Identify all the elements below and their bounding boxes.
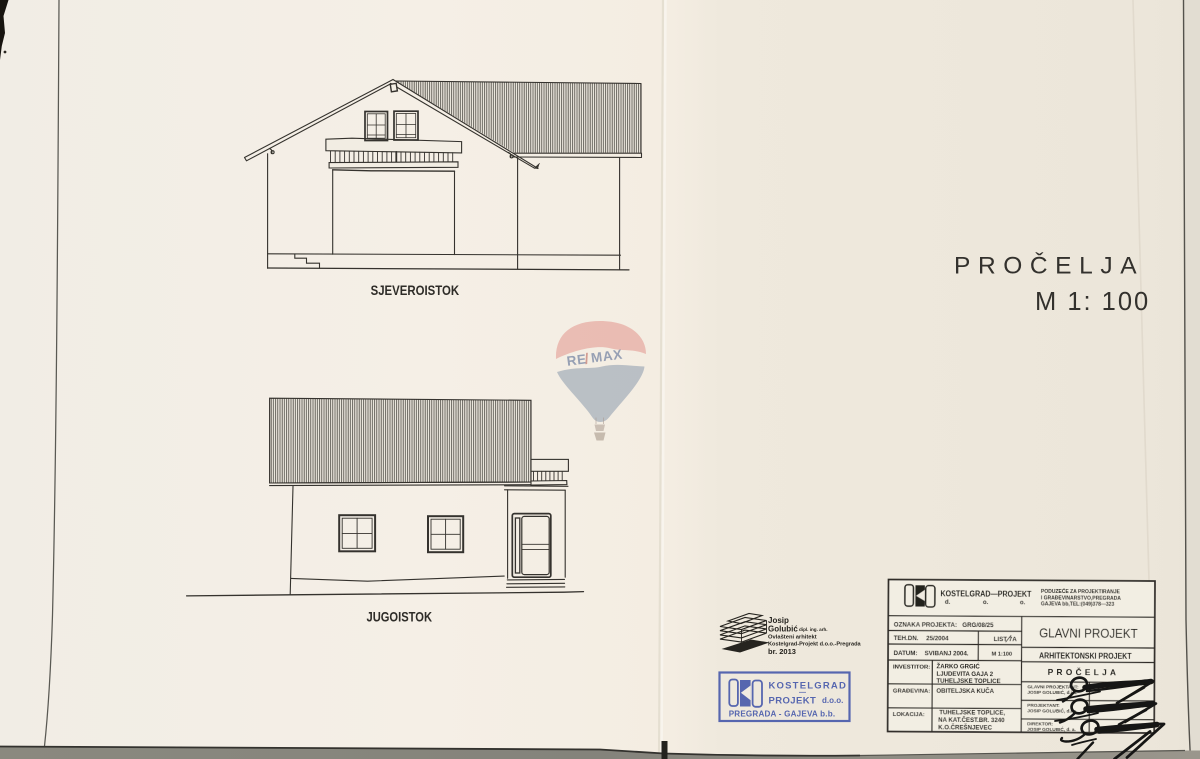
svg-text:PROJEKTANT:: PROJEKTANT: — [1027, 703, 1060, 708]
svg-text:d.: d. — [945, 599, 951, 606]
svg-text:KOSTELGRAD: KOSTELGRAD — [769, 681, 848, 692]
svg-text:GRG/08/25: GRG/08/25 — [962, 622, 994, 629]
svg-text:DATUM:: DATUM: — [894, 650, 918, 657]
svg-text:DIREKTOR:: DIREKTOR: — [1027, 721, 1053, 726]
svg-text:SJEVEROISTOK: SJEVEROISTOK — [371, 282, 460, 298]
svg-text:o.: o. — [983, 599, 989, 606]
svg-text:GLAVNI PROJEKT: GLAVNI PROJEKT — [1039, 626, 1138, 642]
svg-text:dipl. ing. arh.: dipl. ing. arh. — [799, 627, 828, 632]
svg-text:OBITELJSKA KUČA: OBITELJSKA KUČA — [936, 688, 994, 695]
svg-text:KOSTELGRAD—PROJEKT: KOSTELGRAD—PROJEKT — [940, 589, 1031, 599]
svg-text:INVESTITOR:: INVESTITOR: — [893, 664, 930, 670]
svg-text:SVIBANJ 2004.: SVIBANJ 2004. — [925, 650, 969, 657]
svg-text:M 1: 100: M 1: 100 — [1035, 288, 1150, 316]
svg-text:25/2004: 25/2004 — [926, 635, 949, 642]
svg-text:TUHELJSKE TOPLICE,: TUHELJSKE TOPLICE, — [939, 709, 1005, 716]
svg-text:M 1:100: M 1:100 — [992, 652, 1013, 658]
svg-text:PROČELJA: PROČELJA — [954, 251, 1144, 279]
svg-text:d.o.o.: d.o.o. — [822, 696, 843, 705]
svg-text:JUGOISTOK: JUGOISTOK — [367, 609, 433, 625]
svg-text:LJUDEVITA GAJA 2: LJUDEVITA GAJA 2 — [936, 671, 993, 678]
svg-text:Ovlašteni arhitekt: Ovlašteni arhitekt — [768, 635, 817, 641]
svg-text:NA KAT.ČEST.BR. 3240: NA KAT.ČEST.BR. 3240 — [938, 717, 1005, 724]
svg-text:OZNAKA PROJEKTA:: OZNAKA PROJEKTA: — [894, 621, 957, 628]
svg-text:PROJEKT: PROJEKT — [769, 695, 817, 706]
svg-text:K.O.ČREŠNJEVEC: K.O.ČREŠNJEVEC — [938, 723, 992, 731]
svg-text:PREGRADA - GAJEVA b.b.: PREGRADA - GAJEVA b.b. — [729, 710, 836, 719]
svg-text:LIST 7A: LIST 7A — [994, 636, 1018, 643]
svg-text:o.: o. — [1020, 599, 1026, 606]
svg-text:br. 2013: br. 2013 — [768, 647, 796, 656]
svg-text:ŽARKO GRGIĆ: ŽARKO GRGIĆ — [936, 662, 980, 670]
svg-text:GRAĐEVINA:: GRAĐEVINA: — [893, 688, 930, 694]
svg-text:GAJEVA bb,TEL:(049)378—323: GAJEVA bb,TEL:(049)378—323 — [1041, 601, 1115, 607]
svg-text:LOKACIJA:: LOKACIJA: — [893, 712, 925, 718]
svg-text:ARHITEKTONSKI PROJEKT: ARHITEKTONSKI PROJEKT — [1039, 651, 1132, 661]
svg-text:TUHELJSKE TOPLICE: TUHELJSKE TOPLICE — [936, 678, 1000, 685]
svg-text:TEH.DN.: TEH.DN. — [894, 635, 919, 642]
svg-text:PROČELJA: PROČELJA — [1048, 666, 1120, 677]
svg-text:Golubić: Golubić — [768, 625, 798, 634]
